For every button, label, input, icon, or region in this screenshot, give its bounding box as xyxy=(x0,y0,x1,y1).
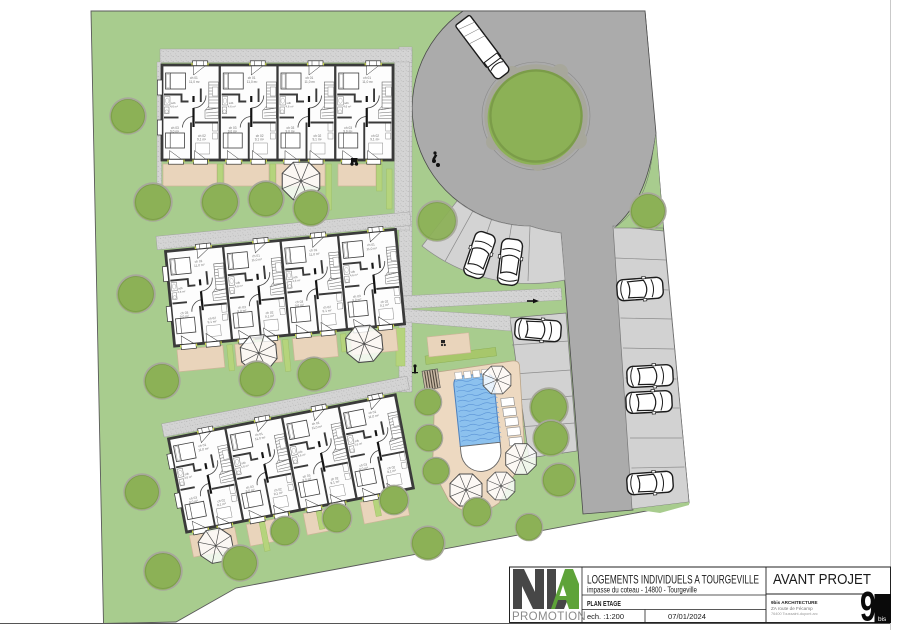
svg-text:07/01/2024: 07/01/2024 xyxy=(668,614,706,621)
svg-text:LOGEMENTS INDIVIDUELS A TOURGE: LOGEMENTS INDIVIDUELS A TOURGEVILLE xyxy=(587,573,759,587)
svg-text:76400 Toussaint-dupont.arc: 76400 Toussaint-dupont.arc xyxy=(771,612,818,616)
svg-text:ech. :1:200: ech. :1:200 xyxy=(587,614,624,621)
svg-text:impasse du coteau - 14800 - T: impasse du coteau - 14800 - Tourgeville xyxy=(587,586,697,595)
svg-text:PROMOTION: PROMOTION xyxy=(512,611,586,623)
svg-text:bis: bis xyxy=(878,616,887,623)
svg-text:9: 9 xyxy=(860,583,876,630)
svg-text:9bis ARCHITECTURE: 9bis ARCHITECTURE xyxy=(771,600,818,605)
svg-text:ZA route de Fécamp: ZA route de Fécamp xyxy=(771,606,813,611)
svg-text:PLAN ETAGE: PLAN ETAGE xyxy=(587,601,621,608)
svg-text:AVANT PROJET: AVANT PROJET xyxy=(773,572,871,588)
